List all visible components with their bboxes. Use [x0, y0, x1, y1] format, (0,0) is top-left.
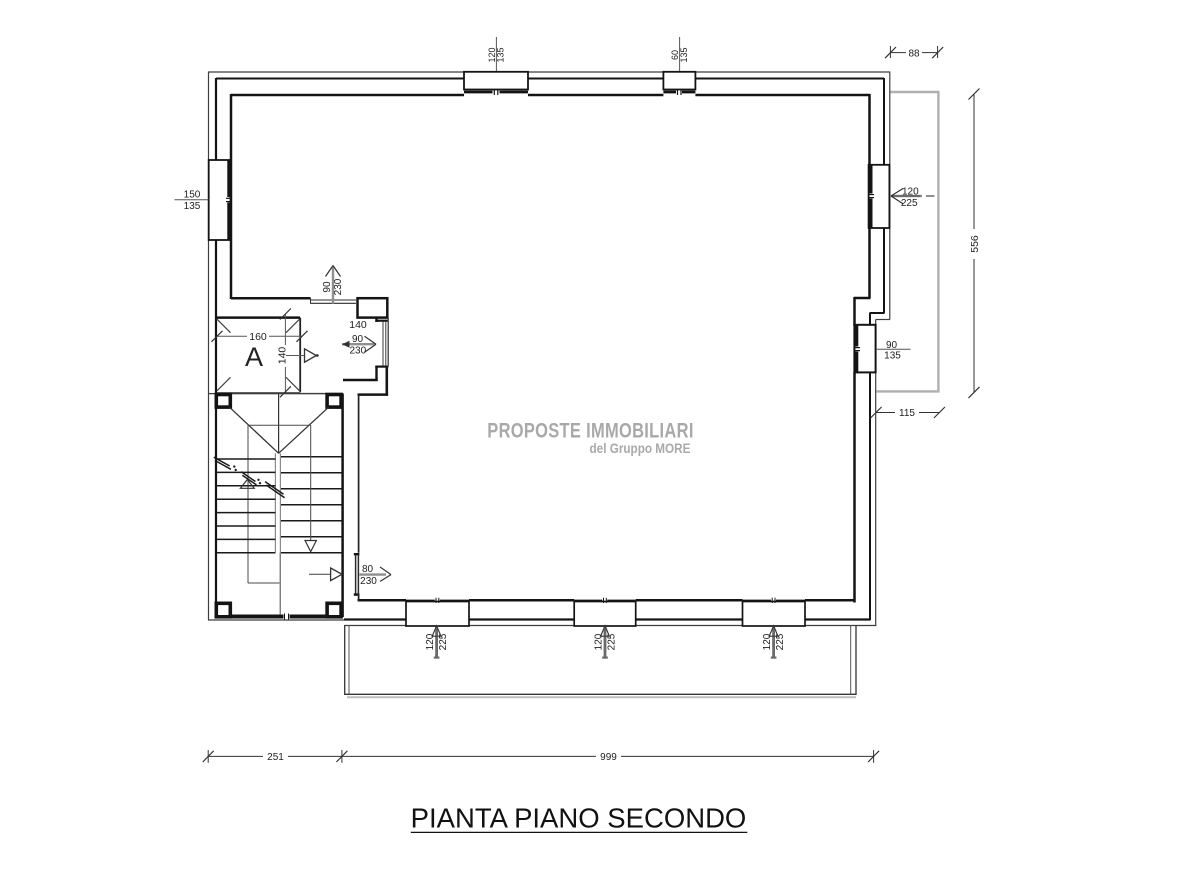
svg-text:del Gruppo MORE: del Gruppo MORE [590, 440, 691, 456]
svg-text:90: 90 [352, 334, 364, 345]
svg-text:120: 120 [594, 633, 605, 650]
svg-text:251: 251 [267, 752, 284, 763]
svg-text:230: 230 [349, 346, 366, 357]
svg-text:999: 999 [600, 752, 617, 763]
svg-text:80: 80 [362, 564, 374, 575]
svg-text:225: 225 [775, 633, 786, 650]
svg-text:120: 120 [425, 633, 436, 650]
svg-text:88: 88 [908, 48, 920, 59]
svg-text:230: 230 [360, 576, 377, 587]
svg-text:225: 225 [607, 633, 618, 650]
svg-text:PIANTA PIANO SECONDO: PIANTA PIANO SECONDO [411, 803, 747, 834]
svg-text:135: 135 [184, 201, 201, 212]
svg-text:135: 135 [884, 350, 901, 361]
svg-text:120: 120 [902, 186, 919, 197]
svg-text:225: 225 [901, 198, 918, 209]
svg-text:A: A [245, 342, 263, 372]
svg-text:150: 150 [184, 190, 201, 201]
svg-text:120: 120 [762, 633, 773, 650]
svg-text:135: 135 [679, 47, 689, 62]
svg-text:140: 140 [349, 319, 367, 331]
svg-text:556: 556 [969, 235, 981, 253]
svg-text:225: 225 [438, 633, 449, 650]
svg-text:135: 135 [496, 47, 506, 62]
svg-text:230: 230 [333, 278, 344, 295]
svg-text:90: 90 [322, 281, 333, 293]
svg-text:115: 115 [899, 408, 915, 419]
svg-text:160: 160 [249, 331, 267, 343]
